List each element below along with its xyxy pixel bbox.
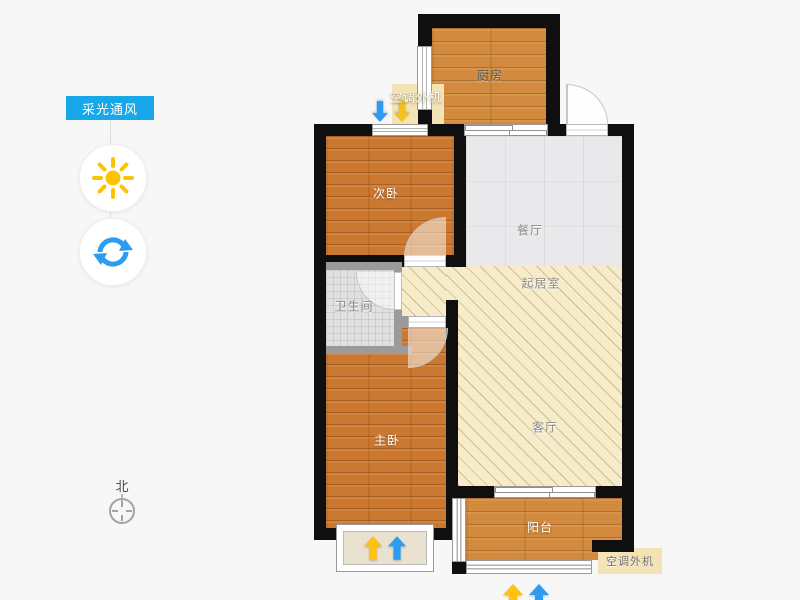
label-master: 主卧 <box>374 432 400 449</box>
bay-window-sill <box>343 531 427 565</box>
label-dining: 餐厅 <box>517 222 543 239</box>
label-kitchen: 厨房 <box>477 67 503 84</box>
rotate-button[interactable] <box>79 218 147 286</box>
window <box>466 560 592 574</box>
door-leaf <box>566 84 568 124</box>
lighting-ventilation-button[interactable]: 采光通风 <box>66 96 154 120</box>
door-threshold <box>566 124 608 136</box>
arrow-up-yellow-icon <box>502 584 524 600</box>
rotate-icon <box>91 230 135 274</box>
label-ac-top: 空调外机 <box>390 89 442 106</box>
wall <box>592 540 634 552</box>
label-bathroom: 卫生间 <box>334 298 373 315</box>
sliding-door-panel <box>465 125 513 131</box>
sun-icon <box>91 156 135 200</box>
floorplan-viewer: 采光通风 北 <box>0 0 800 600</box>
wall <box>596 486 634 498</box>
wall <box>314 124 326 540</box>
label-living: 客厅 <box>532 419 558 436</box>
arrow-down-blue-icon <box>372 98 388 125</box>
bathroom-wall <box>326 262 402 270</box>
label-bedroom2: 次卧 <box>373 185 399 202</box>
arrow-up-blue-icon <box>388 536 406 560</box>
sliding-door-panel <box>495 487 553 493</box>
north-label: 北 <box>100 480 144 494</box>
hallway[interactable] <box>402 267 446 316</box>
arrow-up-yellow-icon <box>364 536 382 560</box>
wall <box>418 14 560 28</box>
wall <box>452 562 466 574</box>
window <box>372 124 428 136</box>
sliding-door <box>464 124 548 136</box>
wall <box>548 124 566 136</box>
wall <box>454 136 466 267</box>
sun-button[interactable] <box>79 144 147 212</box>
arrow-up-blue-icon <box>528 584 550 600</box>
bathroom-wall <box>326 346 412 354</box>
bay-window <box>336 524 434 572</box>
wall <box>446 486 494 498</box>
door-arc-entrance <box>566 84 608 124</box>
room-living-hall[interactable] <box>446 266 622 486</box>
wall <box>446 255 466 267</box>
room-dining[interactable] <box>466 136 622 266</box>
label-hall: 起居室 <box>521 275 560 292</box>
door-threshold <box>408 316 446 328</box>
wall <box>428 124 464 136</box>
sliding-door <box>494 486 596 498</box>
compass: 北 <box>100 480 144 533</box>
wall <box>546 14 560 124</box>
window <box>452 498 466 562</box>
sliding-door-panel <box>549 492 595 498</box>
sliding-door-panel <box>509 130 547 136</box>
door-threshold <box>394 272 402 310</box>
label-balcony: 阳台 <box>527 519 553 536</box>
compass-icon <box>105 494 139 528</box>
label-ac-bottom: 空调外机 <box>606 553 654 569</box>
